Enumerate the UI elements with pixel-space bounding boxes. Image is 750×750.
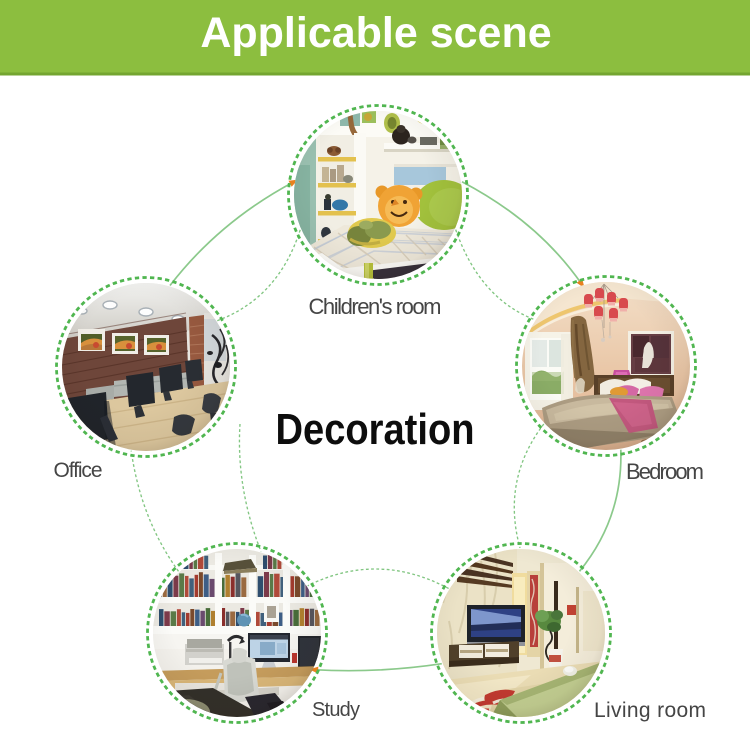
svg-text:Office: Office: [54, 459, 103, 482]
svg-text:Study: Study: [312, 699, 360, 721]
svg-text:Living room: Living room: [594, 699, 706, 722]
svg-text:Children's room: Children's room: [309, 294, 442, 319]
svg-text:Decoration: Decoration: [276, 405, 475, 454]
svg-text:Bedroom: Bedroom: [626, 459, 704, 484]
svg-text:Applicable scene: Applicable scene: [200, 9, 551, 57]
